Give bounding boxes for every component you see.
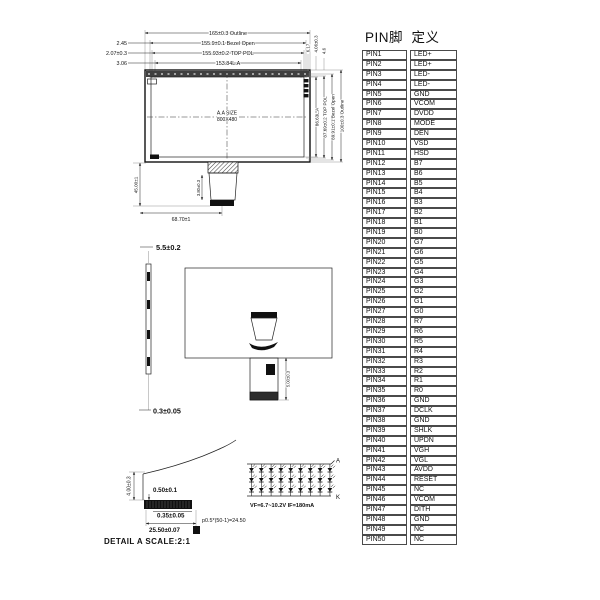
pin-table-row: PIN22G5 (362, 258, 462, 268)
detail-a-title: DETAIL A SCALE:2:1 (104, 537, 190, 546)
pin-table-row: PIN8MODE (362, 119, 462, 129)
dim-detail-height: 4.00±0.3 (127, 476, 133, 496)
pin-number-cell: PIN20 (362, 238, 407, 248)
pin-signal-cell: G7 (410, 238, 457, 248)
pin-signal-cell: UPDN (410, 436, 457, 446)
pin-table-row: PIN35R0 (362, 386, 462, 396)
led-diode-symbol (279, 465, 287, 472)
pin-table-row: PIN32R3 (362, 357, 462, 367)
pin-signal-cell: R2 (410, 367, 457, 377)
pin-table-row: PIN39SHLK (362, 426, 462, 436)
pin-table-row: PIN42VGL (362, 456, 462, 466)
led-diode-symbol (249, 465, 257, 472)
datasheet-page: 165±0.3 Outline 155.9±0.1 Bezel Open 155… (0, 0, 600, 600)
pin-number-cell: PIN25 (362, 287, 407, 297)
pin-table-row: PIN5GND (362, 90, 462, 100)
pin-signal-cell: LED+ (410, 50, 457, 60)
gold-finger-divisions (147, 501, 189, 508)
pin-table-row: PIN31R4 (362, 347, 462, 357)
led-diode-symbol (318, 485, 326, 492)
pin-signal-cell: R4 (410, 347, 457, 357)
pin-number-cell: PIN46 (362, 495, 407, 505)
pin-number-cell: PIN47 (362, 505, 407, 515)
fpc-tail (209, 173, 237, 200)
pin-signal-cell: B3 (410, 198, 457, 208)
pin-signal-cell: GND (410, 515, 457, 525)
active-area-size-label: A.A SIZE (217, 111, 238, 117)
pin-number-cell: PIN24 (362, 277, 407, 287)
led-diode-symbol (298, 475, 306, 482)
pin-signal-cell: VSD (410, 139, 457, 149)
pin-signal-cell: MODE (410, 119, 457, 129)
pin-number-cell: PIN50 (362, 535, 407, 545)
pin-table-row: PIN34R1 (362, 376, 462, 386)
pin-number-cell: PIN17 (362, 208, 407, 218)
dim-left-offset-1: 2.45 (117, 41, 128, 47)
pin-table-row: PIN45NC (362, 485, 462, 495)
led-diode-symbol (249, 475, 257, 482)
pin-number-cell: PIN12 (362, 159, 407, 169)
pin-number-cell: PIN30 (362, 337, 407, 347)
fpc-stiffener (208, 162, 238, 173)
pin-signal-cell: G5 (410, 258, 457, 268)
pin-number-cell: PIN37 (362, 406, 407, 416)
dim-outline-height: 100±0.3 Outline (340, 99, 345, 132)
led-diode-symbol (328, 485, 336, 492)
pin-table-row: PIN43AVDD (362, 465, 462, 475)
pin-table-row: PIN23G4 (362, 268, 462, 278)
front-view-drawing: 165±0.3 Outline 155.9±0.1 Bezel Open 155… (106, 30, 344, 223)
pin-number-cell: PIN2 (362, 60, 407, 70)
pin-table-row: PIN49NC (362, 525, 462, 535)
pin-number-cell: PIN31 (362, 347, 407, 357)
dim-top-right-offset-3: 4.6 (322, 47, 327, 54)
led-diode-symbol (288, 465, 296, 472)
dim-finger-top: 0.50±0.1 (153, 487, 178, 494)
pin-table-row: PIN4LED- (362, 80, 462, 90)
pin-number-cell: PIN4 (362, 80, 407, 90)
pin-table-row: PIN40UPDN (362, 436, 462, 446)
pin-signal-cell: GND (410, 396, 457, 406)
pin-signal-cell: NC (410, 485, 457, 495)
pin-number-cell: PIN33 (362, 367, 407, 377)
led-diode-symbol (308, 485, 316, 492)
anode-label: A (336, 459, 340, 465)
panel-bottom-mark (150, 155, 159, 160)
pin-table-row: PIN48GND (362, 515, 462, 525)
led-diode-symbol (318, 475, 326, 482)
pin-number-cell: PIN15 (362, 188, 407, 198)
fpc-contact-end (250, 392, 278, 400)
pin-signal-cell: LED- (410, 80, 457, 90)
pin-table-row: PIN21G6 (362, 248, 462, 258)
led-diode-symbol (259, 475, 267, 482)
pin-signal-cell: AVDD (410, 465, 457, 475)
technical-drawing: 165±0.3 Outline 155.9±0.1 Bezel Open 155… (0, 0, 360, 600)
pin-table-row: PIN36GND (362, 396, 462, 406)
pin-signal-cell: G1 (410, 297, 457, 307)
led-array (249, 464, 335, 496)
pin-signal-cell: VCOM (410, 99, 457, 109)
pin-signal-cell: B2 (410, 208, 457, 218)
pin-signal-cell: G3 (410, 277, 457, 287)
pin-signal-cell: B6 (410, 169, 457, 179)
dim-tape-thickness: 0.3±0.05 (153, 407, 181, 416)
pin-number-cell: PIN38 (362, 416, 407, 426)
pin-table-row: PIN29R6 (362, 327, 462, 337)
pin-table-row: PIN6VCOM (362, 99, 462, 109)
pin-signal-cell: RESET (410, 475, 457, 485)
dim-fpc-tail-length: 5.00±0.3 (286, 370, 291, 387)
pin-table-row: PIN47DITH (362, 505, 462, 515)
pin-signal-cell: VGL (410, 456, 457, 466)
pin-number-cell: PIN1 (362, 50, 407, 60)
pitch-formula: p0.5*(50-1)=24.50 (202, 518, 246, 524)
pin-signal-cell: B1 (410, 218, 457, 228)
pin-signal-cell: R6 (410, 327, 457, 337)
pin-number-cell: PIN27 (362, 307, 407, 317)
pin-signal-cell: B5 (410, 179, 457, 189)
pin-table-row: PIN28R7 (362, 317, 462, 327)
pin-signal-cell: R3 (410, 357, 457, 367)
pin-signal-cell: R7 (410, 317, 457, 327)
panel-corner-mark (148, 79, 157, 84)
pin-signal-cell: B0 (410, 228, 457, 238)
pin-signal-cell: B4 (410, 188, 457, 198)
pin-number-cell: PIN16 (362, 198, 407, 208)
dim-top-right-offset-1: 6.17 (306, 43, 311, 52)
pin-signal-cell: SHLK (410, 426, 457, 436)
pin-number-cell: PIN43 (362, 465, 407, 475)
pin-number-cell: PIN49 (362, 525, 407, 535)
pin-number-cell: PIN28 (362, 317, 407, 327)
backlight-spec: VF=6.7~10.2V IF=180mA (250, 503, 314, 509)
pin-table-row: PIN25G2 (362, 287, 462, 297)
pin-table-row: PIN11HSD (362, 149, 462, 159)
pin-number-cell: PIN26 (362, 297, 407, 307)
pin-table-row: PIN24G3 (362, 277, 462, 287)
pin-number-cell: PIN41 (362, 446, 407, 456)
pin-table-row: PIN12B7 (362, 159, 462, 169)
pin-table-row: PIN30R5 (362, 337, 462, 347)
pin-number-cell: PIN48 (362, 515, 407, 525)
led-diode-symbol (308, 475, 316, 482)
pin-signal-cell: G0 (410, 307, 457, 317)
pin-table-row: PIN38GND (362, 416, 462, 426)
pin-number-cell: PIN36 (362, 396, 407, 406)
led-circuit-diagram: A K VF=6.7~10.2V IF=180mA (247, 459, 340, 510)
pin-signal-cell: DITH (410, 505, 457, 515)
pin-table-row: PIN20G7 (362, 238, 462, 248)
pin-table-row: PIN10VSD (362, 139, 462, 149)
pin-number-cell: PIN40 (362, 436, 407, 446)
pin-table-row: PIN27G0 (362, 307, 462, 317)
pin-number-cell: PIN34 (362, 376, 407, 386)
pin-signal-cell: R1 (410, 376, 457, 386)
detail-end-block (193, 526, 200, 534)
dim-left-offset-2: 2.07±0.3 (106, 51, 127, 57)
pin-number-cell: PIN18 (362, 218, 407, 228)
pin-signal-cell: NC (410, 525, 457, 535)
dim-finger-bottom: 0.35±0.05 (157, 513, 185, 520)
pin-definition-table: PIN脚 定义 PIN1LED+PIN2LED+PIN3LED-PIN4LED-… (362, 26, 462, 545)
pin-table-row: PIN46VCOM (362, 495, 462, 505)
pin-number-cell: PIN7 (362, 109, 407, 119)
led-diode-symbol (269, 485, 277, 492)
fpc-fold-bar (251, 312, 277, 318)
pin-number-cell: PIN39 (362, 426, 407, 436)
led-diode-symbol (328, 475, 336, 482)
pin-number-cell: PIN5 (362, 90, 407, 100)
pin-table-row: PIN3LED- (362, 70, 462, 80)
pin-signal-cell: DEN (410, 129, 457, 139)
dim-bezel-open-width: 155.9±0.1 Bezel Open (201, 41, 255, 47)
pin-table-row: PIN33R2 (362, 367, 462, 377)
pin-number-cell: PIN19 (362, 228, 407, 238)
fpc-fold-curve (249, 342, 278, 350)
dim-outline-width: 165±0.3 Outline (209, 31, 247, 37)
fpc-bend-curve (143, 440, 236, 474)
pin-number-cell: PIN11 (362, 149, 407, 159)
back-view-drawing: 5.5±0.2 0.3±0.05 5.00±0.3 (139, 243, 332, 416)
pin-table-row: PIN9DEN (362, 129, 462, 139)
pin-number-cell: PIN13 (362, 169, 407, 179)
pin-table-rows: PIN1LED+PIN2LED+PIN3LED-PIN4LED-PIN5GNDP… (362, 50, 462, 545)
pin-number-cell: PIN22 (362, 258, 407, 268)
dim-left-offset-3: 3.06 (117, 61, 128, 67)
pin-table-row: PIN1LED+ (362, 50, 462, 60)
pin-table-row: PIN37DCLK (362, 406, 462, 416)
pin-number-cell: PIN8 (362, 119, 407, 129)
pin-table-row: PIN17B2 (362, 208, 462, 218)
dim-fpc-width: 3.80±0.3 (196, 179, 201, 196)
pin-table-row: PIN26G1 (362, 297, 462, 307)
led-diode-symbol (318, 465, 326, 472)
pin-number-cell: PIN6 (362, 99, 407, 109)
pin-signal-cell: LED- (410, 70, 457, 80)
led-diode-symbol (279, 475, 287, 482)
pin-signal-cell: R0 (410, 386, 457, 396)
pin-signal-cell: GND (410, 416, 457, 426)
pin-number-cell: PIN32 (362, 357, 407, 367)
dim-finger-width: 25.50±0.07 (149, 527, 180, 534)
pin-number-cell: PIN29 (362, 327, 407, 337)
cathode-label: K (336, 495, 340, 501)
pin-signal-cell: NC (410, 535, 457, 545)
pin-number-cell: PIN14 (362, 179, 407, 189)
pin-number-cell: PIN21 (362, 248, 407, 258)
pin-signal-cell: G4 (410, 268, 457, 278)
pin-table-row: PIN41VGH (362, 446, 462, 456)
pin-number-cell: PIN10 (362, 139, 407, 149)
pin-signal-cell: LED+ (410, 60, 457, 70)
led-diode-symbol (259, 465, 267, 472)
led-diode-symbol (288, 475, 296, 482)
pin-signal-cell: DCLK (410, 406, 457, 416)
led-diode-symbol (328, 465, 336, 472)
led-diode-symbol (269, 475, 277, 482)
fpc-fold-body (251, 318, 277, 340)
pin-signal-cell: B7 (410, 159, 457, 169)
pin-table-row: PIN14B5 (362, 179, 462, 189)
pin-signal-cell: G2 (410, 287, 457, 297)
pin-table-header: PIN脚 定义 (365, 26, 462, 46)
pin-number-cell: PIN23 (362, 268, 407, 278)
pin-signal-cell: G6 (410, 248, 457, 258)
led-diode-symbol (269, 465, 277, 472)
pin-signal-cell: VGH (410, 446, 457, 456)
dim-fpc-drop-height: 45.00±1 (134, 176, 139, 193)
dim-module-thickness: 5.5±0.2 (156, 243, 181, 252)
detail-a-drawing: 4.00±0.3 0.50±0.1 0.35±0.05 p0.5*(50-1)=… (104, 440, 246, 546)
dim-active-area-width: 153.84L.A (216, 61, 241, 67)
fpc-connector-end (210, 200, 234, 206)
pin-number-cell: PIN45 (362, 485, 407, 495)
pin-number-cell: PIN42 (362, 456, 407, 466)
fpc-component (266, 364, 275, 375)
pin-table-row: PIN18B1 (362, 218, 462, 228)
pin-table-row: PIN19B0 (362, 228, 462, 238)
pin-signal-cell: DVDD (410, 109, 457, 119)
pin-table-row: PIN7DVDD (362, 109, 462, 119)
led-diode-symbol (259, 485, 267, 492)
pin-number-cell: PIN35 (362, 386, 407, 396)
pin-table-row: PIN16B3 (362, 198, 462, 208)
dim-fpc-center-offset: 68.70±1 (172, 217, 191, 223)
dim-bezel-open-height: 89.91±0.1 Bezel Open (331, 94, 336, 140)
pin-number-cell: PIN3 (362, 70, 407, 80)
resolution-label: 800X480 (217, 117, 237, 123)
pin-table-row: PIN15B4 (362, 188, 462, 198)
pin-table-row: PIN50NC (362, 535, 462, 545)
pin-table-row: PIN44RESET (362, 475, 462, 485)
pin-signal-cell: HSD (410, 149, 457, 159)
led-diode-symbol (249, 485, 257, 492)
side-profile-marks (147, 272, 150, 366)
pin-signal-cell: R5 (410, 337, 457, 347)
pin-number-cell: PIN9 (362, 129, 407, 139)
dim-top-pol-height: 87.69±0.2 TOP POL (323, 96, 328, 138)
led-diode-symbol (298, 485, 306, 492)
pin-number-cell: PIN44 (362, 475, 407, 485)
led-diode-symbol (298, 465, 306, 472)
pin-signal-cell: GND (410, 90, 457, 100)
led-diode-symbol (288, 485, 296, 492)
pin-signal-cell: VCOM (410, 495, 457, 505)
dim-active-area-height: 86.63L.A (315, 107, 320, 126)
pin-table-row: PIN13B6 (362, 169, 462, 179)
dim-top-pol-width: 155.93±0.2 TOP POL (202, 51, 254, 57)
pin-table-row: PIN2LED+ (362, 60, 462, 70)
led-diode-symbol (308, 465, 316, 472)
led-diode-symbol (279, 485, 287, 492)
dim-top-right-offset-2: 4.06±0.3 (314, 35, 319, 53)
